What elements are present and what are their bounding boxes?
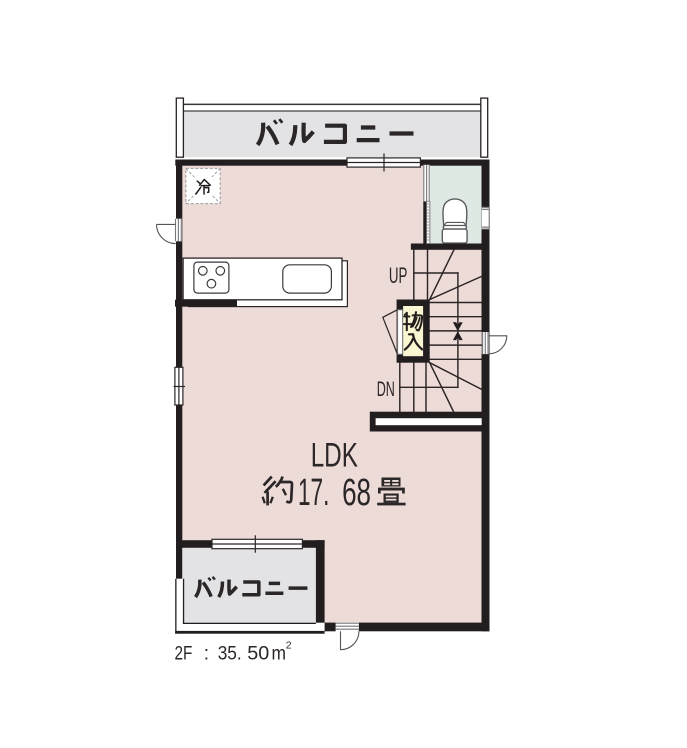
svg-text:2: 2 xyxy=(286,640,292,652)
svg-text:68: 68 xyxy=(342,471,371,513)
svg-text:2F: 2F xyxy=(175,644,193,665)
svg-text:17.: 17. xyxy=(298,471,329,513)
svg-text:DN: DN xyxy=(377,377,395,401)
svg-text:LDK: LDK xyxy=(311,437,358,475)
svg-text:50: 50 xyxy=(247,644,269,665)
svg-text:UP: UP xyxy=(389,263,408,288)
svg-text:35.: 35. xyxy=(218,644,242,665)
svg-text::: : xyxy=(204,644,209,665)
svg-text:m: m xyxy=(272,644,287,665)
